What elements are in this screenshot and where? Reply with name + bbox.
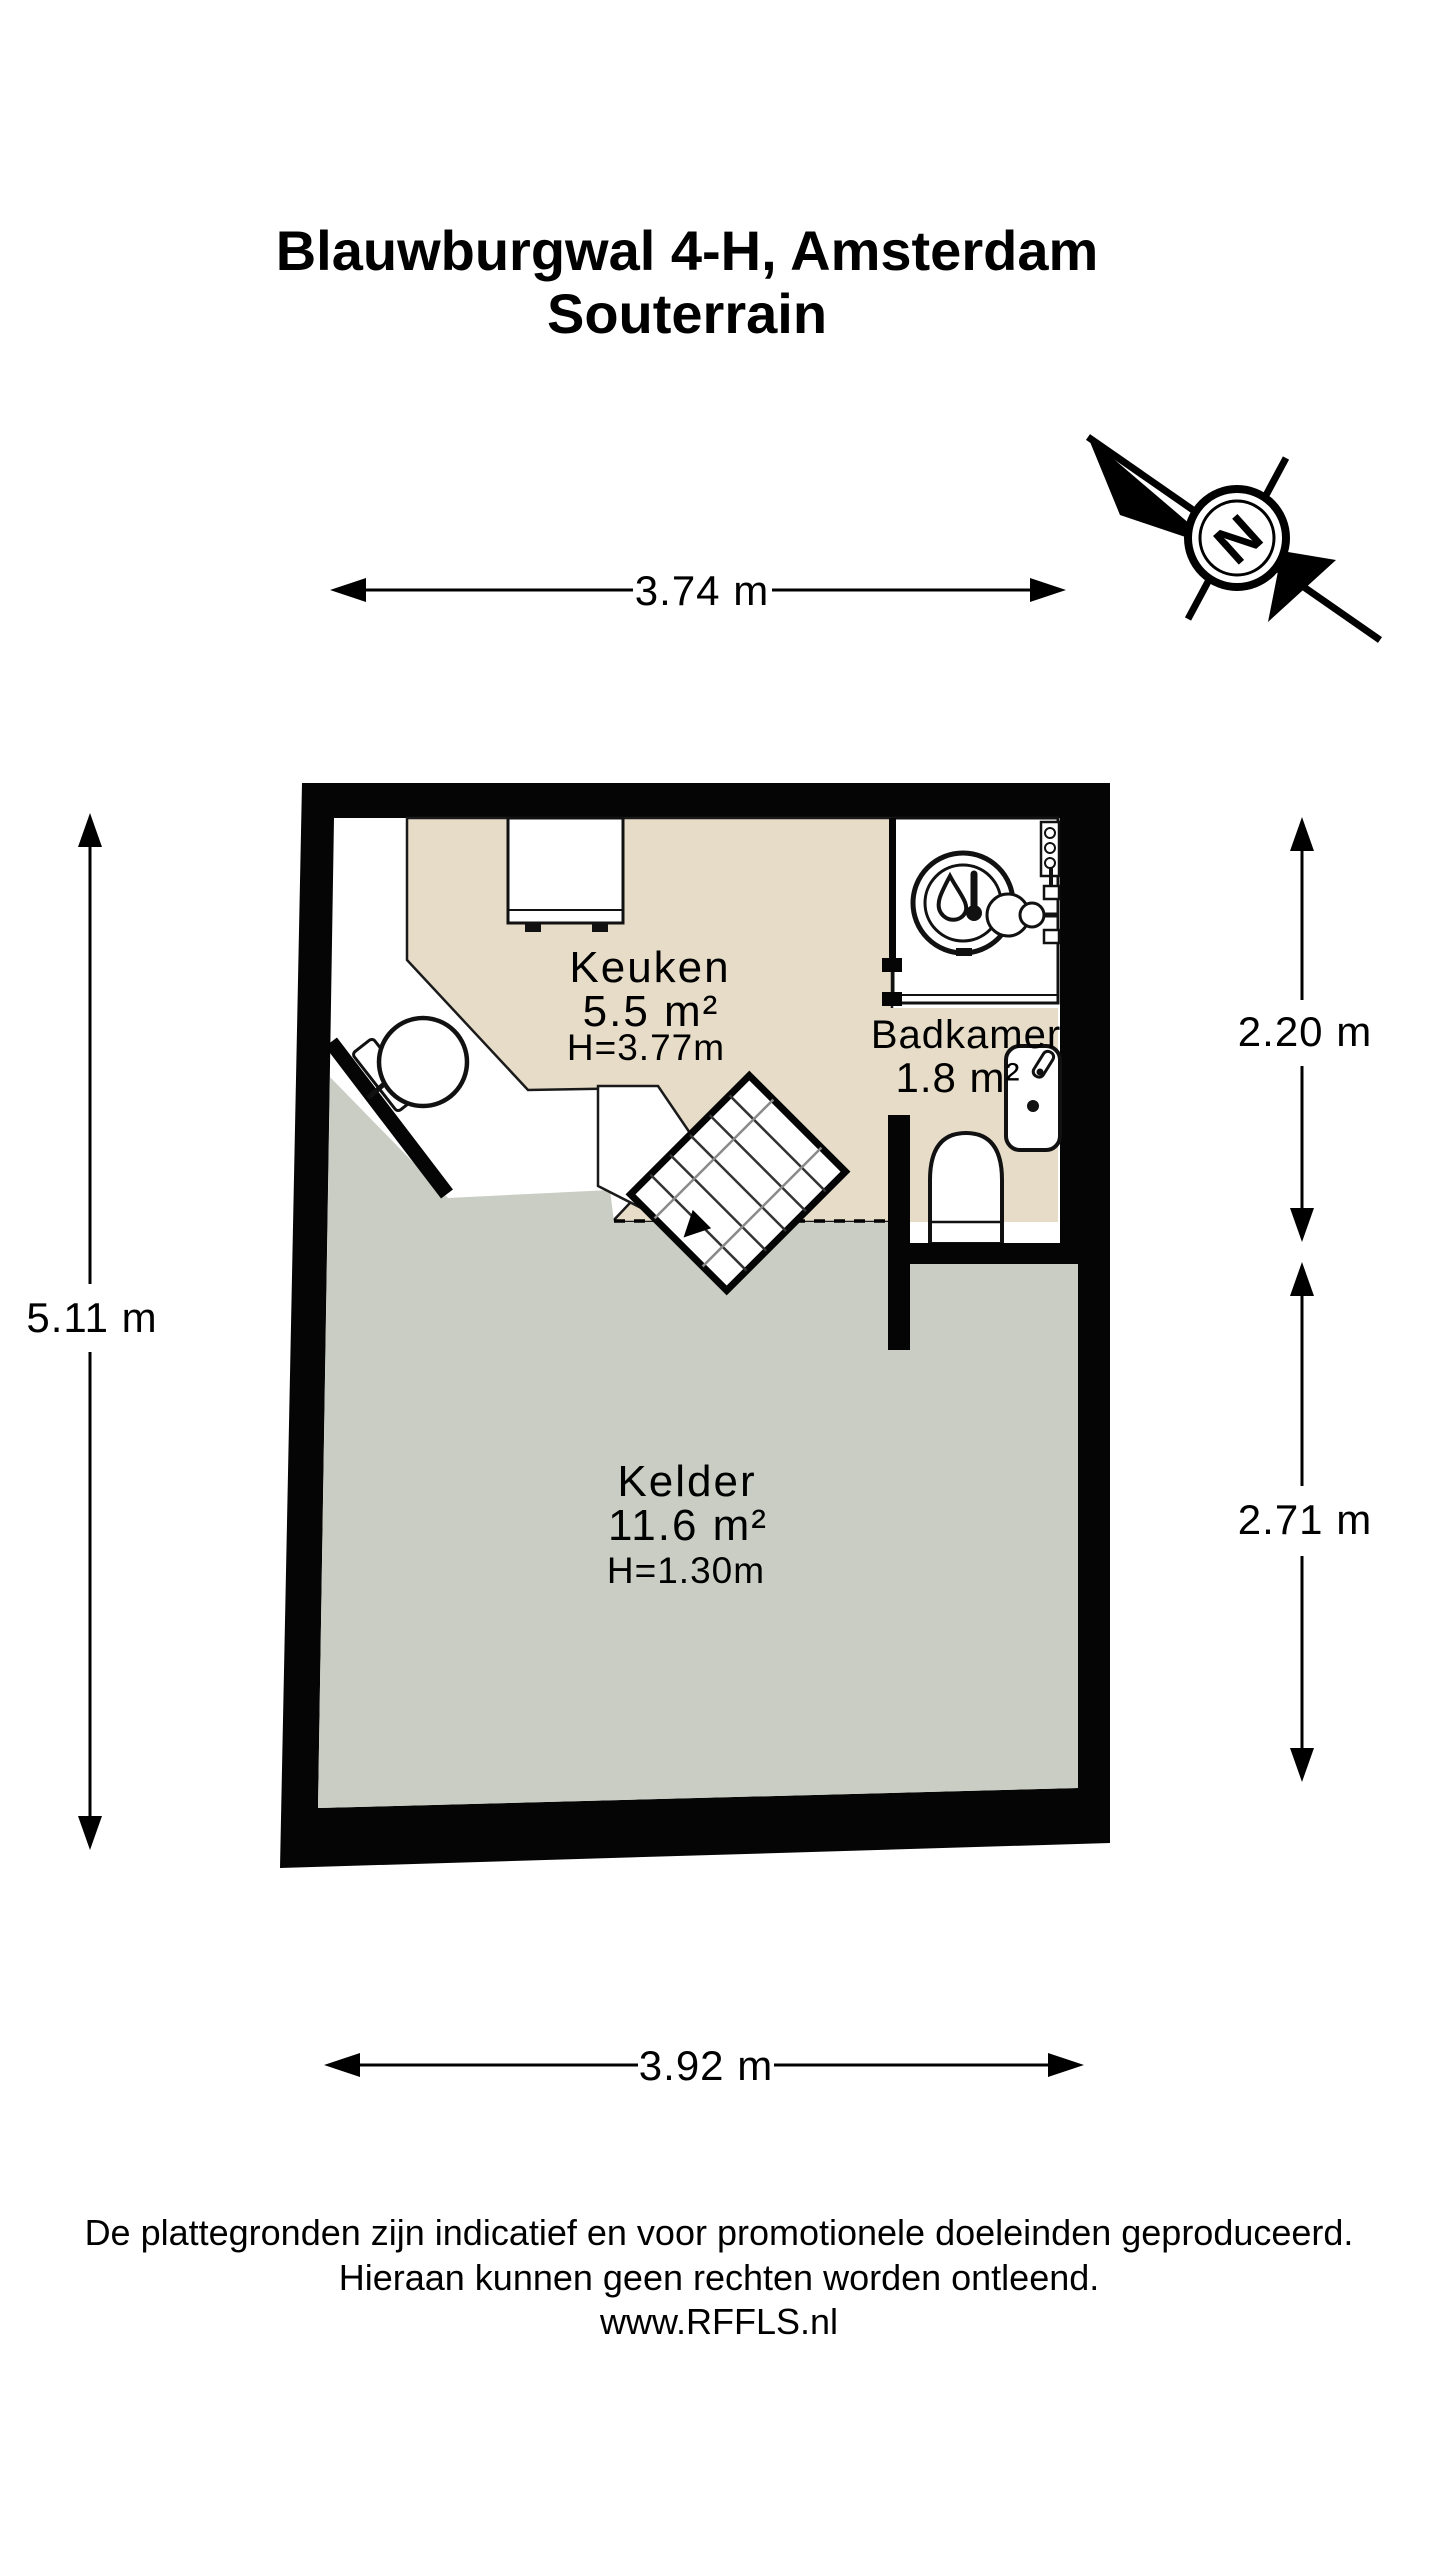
arrowhead-left [324, 2053, 360, 2077]
disclaimer-line-2: Hieraan kunnen geen rechten worden ontle… [339, 2257, 1100, 2298]
badkamer-name: Badkamer [871, 1013, 1061, 1057]
dimension-right-upper-label: 2.20 m [1238, 1008, 1372, 1055]
footer-disclaimer: De plattegronden zijn indicatief en voor… [85, 2212, 1354, 2342]
arrowhead-down [78, 1816, 102, 1850]
title-floor: Souterrain [547, 282, 827, 345]
dimension-right-lower-label: 2.71 m [1238, 1496, 1372, 1543]
dimension-bottom: 3.92 m [324, 2042, 1084, 2089]
compass-tick-ne [1264, 458, 1286, 499]
page-title: Blauwburgwal 4-H, Amsterdam Souterrain [276, 219, 1099, 345]
floorplan-page: Blauwburgwal 4-H, Amsterdam Souterrain N… [0, 0, 1440, 2560]
title-address: Blauwburgwal 4-H, Amsterdam [276, 219, 1099, 282]
arrowhead-down [1290, 1748, 1314, 1782]
dimension-left-label: 5.11 m [26, 1294, 157, 1341]
keuken-name: Keuken [569, 943, 730, 992]
dimension-right-lower: 2.71 m [1238, 1262, 1372, 1782]
arrowhead-up [1290, 817, 1314, 851]
dimension-top-label: 3.74 m [635, 567, 769, 614]
arrowhead-up [78, 813, 102, 847]
arrowhead-down [1290, 1208, 1314, 1242]
dimension-top: 3.74 m [330, 567, 1066, 614]
badkamer-area: 1.8 m² [895, 1054, 1020, 1101]
kelder-label: Kelder 11.6 m² H=1.30m [607, 1457, 768, 1591]
dimension-right-upper: 2.20 m [1238, 817, 1372, 1242]
floor-plan: Keuken 5.5 m² H=3.77m Badkamer 1.8 m² Ke… [280, 783, 1110, 1868]
compass-tick-sw [1188, 578, 1210, 619]
keuken-label: Keuken 5.5 m² H=3.77m [567, 943, 731, 1068]
keuken-height: H=3.77m [567, 1027, 725, 1068]
valve-panel-icon [1041, 822, 1059, 876]
cellar-divider-wall [888, 1115, 910, 1350]
website-link: www.RFFLS.nl [599, 2301, 838, 2342]
kelder-height: H=1.30m [607, 1550, 765, 1591]
floorplan-canvas: Blauwburgwal 4-H, Amsterdam Souterrain N… [0, 0, 1440, 2560]
arrowhead-up [1290, 1262, 1314, 1296]
arrowhead-left [330, 578, 366, 602]
kelder-area: 11.6 m² [608, 1501, 768, 1550]
dimension-bottom-label: 3.92 m [639, 2042, 773, 2089]
badkamer-bottom-wall [908, 1243, 1110, 1264]
disclaimer-line-1: De plattegronden zijn indicatief en voor… [85, 2212, 1354, 2253]
north-compass-icon: N [1088, 437, 1380, 640]
dimension-left: 5.11 m [26, 813, 157, 1850]
kitchen-appliance-icon [508, 818, 623, 932]
toilet-icon [930, 1133, 1002, 1244]
kelder-name: Kelder [617, 1457, 756, 1506]
arrowhead-right [1048, 2053, 1084, 2077]
arrowhead-right [1030, 578, 1066, 602]
